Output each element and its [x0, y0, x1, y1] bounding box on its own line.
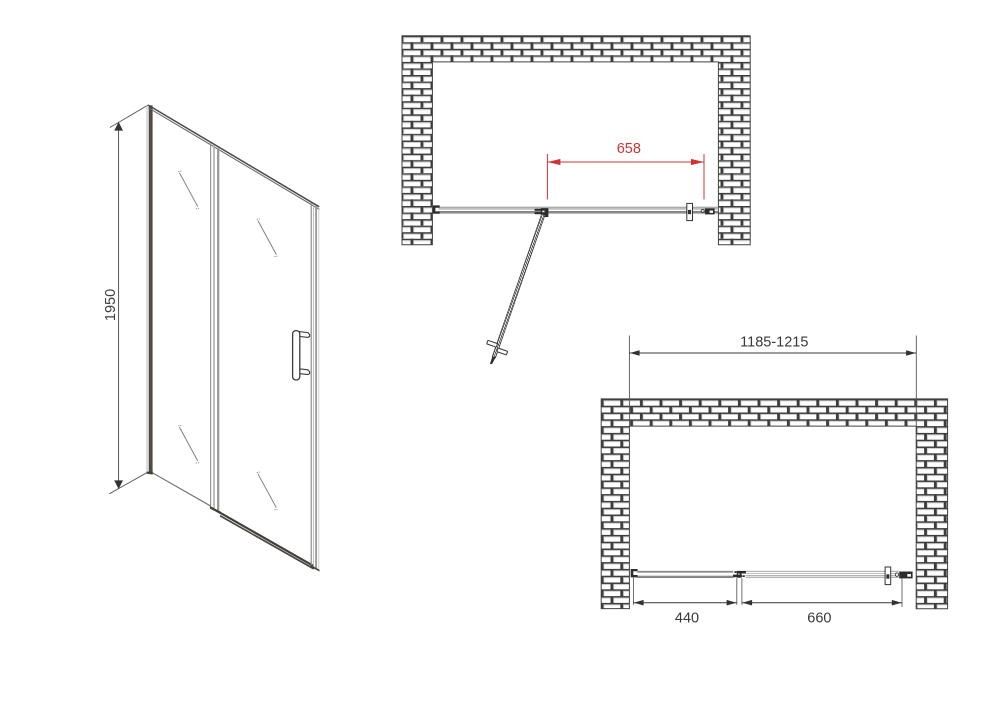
svg-text:1185-1215: 1185-1215 — [740, 334, 808, 350]
svg-text:660: 660 — [807, 610, 831, 626]
svg-text:440: 440 — [675, 610, 699, 626]
svg-text:1950: 1950 — [103, 289, 119, 321]
svg-text:658: 658 — [617, 141, 641, 157]
